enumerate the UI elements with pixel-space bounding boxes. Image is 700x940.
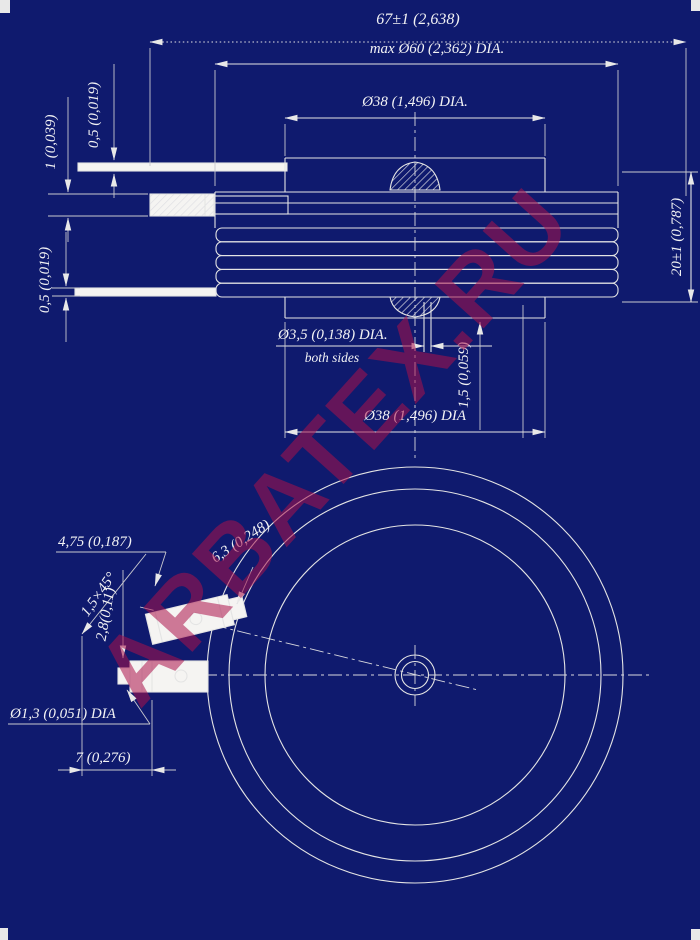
case-height-label: 20±1 (0,787)	[669, 198, 685, 276]
upper-lead	[78, 163, 287, 171]
dim-upper-lead-thickness: 0,5 (0,019)	[86, 64, 114, 198]
lower-lead-thickness-label: 0,5 (0,019)	[37, 247, 53, 313]
upper-lead-thickness-label: 0,5 (0,019)	[86, 82, 102, 148]
dim-case-height: 20±1 (0,787)	[622, 172, 698, 302]
top-center-boss	[390, 162, 440, 190]
dim-lower-lead-thickness: 0,5 (0,019)	[37, 232, 80, 342]
wire-diameter-label: Ø1,3 (0,051) DIA	[9, 706, 117, 722]
gate-terminal-width-label: 4,75 (0,187)	[58, 534, 132, 550]
corner-mark	[691, 929, 700, 940]
lower-lead	[75, 288, 216, 296]
drawing-page: 67±1 (2,638) max Ø60 (2,362) DIA. Ø38 (1…	[0, 0, 700, 940]
corner-mark	[691, 0, 700, 11]
overall-width-label: 67±1 (2,638)	[376, 11, 459, 28]
gate-terminal-side	[150, 194, 288, 216]
technical-drawing: 67±1 (2,638) max Ø60 (2,362) DIA. Ø38 (1…	[0, 0, 700, 940]
case-diameter-label: max Ø60 (2,362) DIA.	[370, 41, 505, 57]
top-pole-diameter-label: Ø38 (1,496) DIA.	[361, 94, 468, 110]
corner-mark	[0, 0, 10, 13]
corner-mark	[0, 928, 8, 940]
lead-protrusion-label: 7 (0,276)	[76, 750, 131, 766]
watermark-text: ARBATEX.RU	[76, 168, 592, 724]
lead-spacing-label: 1 (0,039)	[43, 115, 59, 170]
